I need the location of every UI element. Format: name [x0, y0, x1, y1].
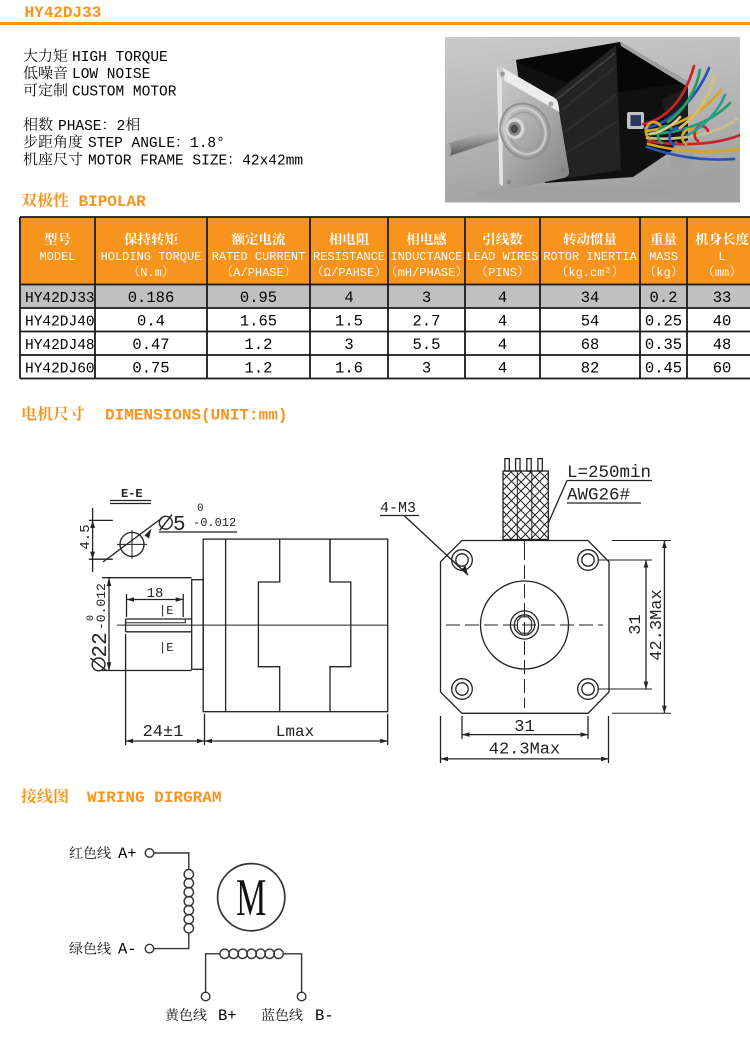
svg-text:1.5: 1.5: [335, 313, 363, 331]
svg-text:0: 0: [197, 503, 204, 515]
svg-text:B-: B-: [315, 1007, 334, 1025]
svg-text:22: 22: [90, 632, 113, 657]
svg-text:4: 4: [498, 289, 507, 307]
svg-text:82: 82: [581, 360, 600, 378]
svg-text:BIPOLAR: BIPOLAR: [79, 193, 147, 211]
svg-text:4: 4: [498, 360, 507, 378]
svg-text:MOTOR FRAME SIZE: MOTOR FRAME SIZE: [88, 153, 227, 169]
svg-text:1.2: 1.2: [245, 360, 273, 378]
svg-text:0.95: 0.95: [240, 289, 277, 307]
svg-text:1.65: 1.65: [240, 313, 277, 331]
svg-text:0.4: 0.4: [137, 313, 165, 331]
svg-text:HIGH TORQUE: HIGH TORQUE: [72, 50, 168, 66]
svg-text:1.6: 1.6: [335, 360, 363, 378]
svg-text:4: 4: [498, 336, 507, 354]
svg-text:A-: A-: [118, 941, 137, 959]
svg-text:kg: kg: [656, 266, 670, 280]
svg-text:4.5: 4.5: [78, 524, 94, 549]
svg-text:0.45: 0.45: [645, 360, 682, 378]
svg-text:42x42mm: 42x42mm: [242, 153, 303, 169]
svg-text:48: 48: [713, 336, 732, 354]
svg-text:3: 3: [422, 360, 431, 378]
svg-text:60: 60: [713, 360, 732, 378]
svg-text:0.25: 0.25: [645, 313, 682, 331]
svg-text:33: 33: [713, 289, 732, 307]
svg-text:LEAD WIRES: LEAD WIRES: [466, 250, 538, 264]
svg-text:|E: |E: [159, 641, 173, 655]
svg-text:kg.cm²: kg.cm²: [568, 266, 611, 280]
svg-text:N.m: N.m: [140, 266, 162, 280]
svg-text:HY42DJ33: HY42DJ33: [25, 4, 102, 22]
svg-text:24±1: 24±1: [143, 723, 184, 742]
svg-text:RESISTANCE: RESISTANCE: [313, 250, 385, 264]
svg-text:34: 34: [581, 289, 600, 307]
svg-text:M: M: [236, 867, 266, 927]
svg-text:L: L: [718, 250, 725, 264]
svg-text:|E: |E: [159, 604, 173, 618]
svg-text:5: 5: [173, 514, 186, 537]
svg-text:HY42DJ40: HY42DJ40: [25, 315, 95, 331]
svg-text:RATED CURRENT: RATED CURRENT: [212, 250, 306, 264]
svg-text:PINS: PINS: [488, 266, 517, 280]
svg-text:LOW NOISE: LOW NOISE: [72, 67, 150, 83]
svg-text:CUSTOM MOTOR: CUSTOM MOTOR: [72, 84, 177, 100]
svg-text:-0.012: -0.012: [94, 583, 109, 630]
svg-text:0.47: 0.47: [132, 336, 169, 354]
svg-text:Ω/PAHSE: Ω/PAHSE: [324, 266, 374, 280]
svg-text:40: 40: [713, 313, 732, 331]
svg-text:HY42DJ33: HY42DJ33: [25, 291, 95, 307]
svg-text:68: 68: [581, 336, 600, 354]
svg-text:-0.012: -0.012: [193, 516, 236, 530]
svg-text:WIRING DIRGRAM: WIRING DIRGRAM: [87, 789, 221, 807]
svg-text:4-M3: 4-M3: [380, 500, 416, 517]
svg-text:5.5: 5.5: [413, 336, 441, 354]
svg-text:MODEL: MODEL: [39, 250, 75, 264]
svg-text:ROTOR INERTIA: ROTOR INERTIA: [543, 250, 637, 264]
svg-text:3: 3: [422, 289, 431, 307]
svg-text:HOLDING TORQUE: HOLDING TORQUE: [101, 250, 202, 264]
svg-text:54: 54: [581, 313, 600, 331]
svg-text:0.186: 0.186: [128, 289, 175, 307]
svg-text:A/PHASE: A/PHASE: [233, 266, 283, 280]
svg-text:MASS: MASS: [649, 250, 678, 264]
svg-text:3: 3: [344, 336, 353, 354]
svg-text:2: 2: [117, 119, 126, 135]
svg-text:INDUCTANCE: INDUCTANCE: [390, 250, 462, 264]
svg-text:Lmax: Lmax: [276, 723, 314, 741]
svg-text:1.2: 1.2: [245, 336, 273, 354]
svg-text:4: 4: [498, 313, 507, 331]
svg-text:0.75: 0.75: [132, 360, 169, 378]
svg-text:42.3Max: 42.3Max: [648, 589, 667, 660]
svg-text:HY42DJ60: HY42DJ60: [25, 362, 95, 378]
svg-text:B+: B+: [218, 1007, 237, 1025]
svg-text:0.2: 0.2: [650, 289, 678, 307]
svg-text:A+: A+: [118, 845, 137, 863]
svg-text:HY42DJ48: HY42DJ48: [25, 338, 95, 354]
svg-text:31: 31: [627, 614, 646, 634]
svg-text:4: 4: [344, 289, 353, 307]
svg-text:mm: mm: [715, 266, 729, 280]
svg-text:PHASE: PHASE: [58, 119, 102, 135]
svg-text:mH/PHASE: mH/PHASE: [398, 266, 456, 280]
svg-text:E-E: E-E: [121, 487, 143, 501]
svg-text:0: 0: [86, 615, 97, 621]
svg-text:2.7: 2.7: [413, 313, 441, 331]
svg-text:DIMENSIONS(UNIT:mm): DIMENSIONS(UNIT:mm): [105, 407, 287, 425]
svg-text:0.35: 0.35: [645, 336, 682, 354]
svg-text:STEP ANGLE: STEP ANGLE: [88, 136, 175, 152]
svg-text:42.3Max: 42.3Max: [489, 741, 560, 760]
svg-text:1.8°: 1.8°: [190, 136, 225, 152]
